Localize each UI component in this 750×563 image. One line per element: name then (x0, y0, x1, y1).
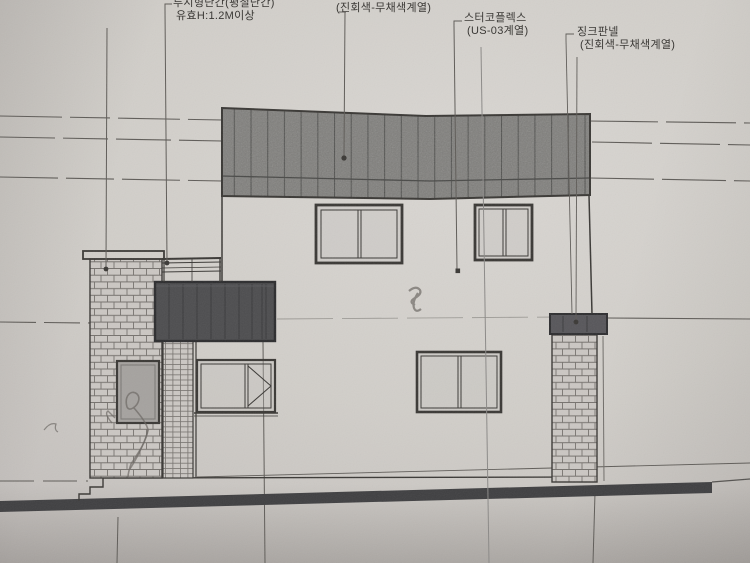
label-roof-color-note-text: (진회색-무채색계열) (336, 2, 431, 14)
label-zinc-spec: (진회색-무채색계열) (577, 39, 675, 52)
paper-grain-overlay (0, 0, 750, 563)
label-zinc-panel: 징크판넬 (진회색-무채색계열) (577, 26, 675, 52)
label-railing: 투시형난간(평철난간) 유효H:1.2M이상 (173, 0, 275, 23)
label-railing-name: 투시형난간(평철난간) (173, 0, 275, 9)
label-stucco-name: 스터코플렉스 (464, 12, 527, 24)
label-railing-spec: 유효H:1.2M이상 (173, 10, 275, 23)
label-stucco-spec: (US-03계열) (464, 25, 528, 38)
label-stucco: 스터코플렉스 (US-03계열) (464, 12, 528, 38)
label-roof-color-note: (진회색-무채색계열) (336, 2, 431, 15)
label-zinc-name: 징크판넬 (577, 26, 619, 38)
photographed-elevation-sheet: (진회색-무채색계열) 투시형난간(평철난간) 유효H:1.2M이상 스터코플렉… (0, 0, 750, 563)
elevation-drawing (0, 0, 750, 563)
